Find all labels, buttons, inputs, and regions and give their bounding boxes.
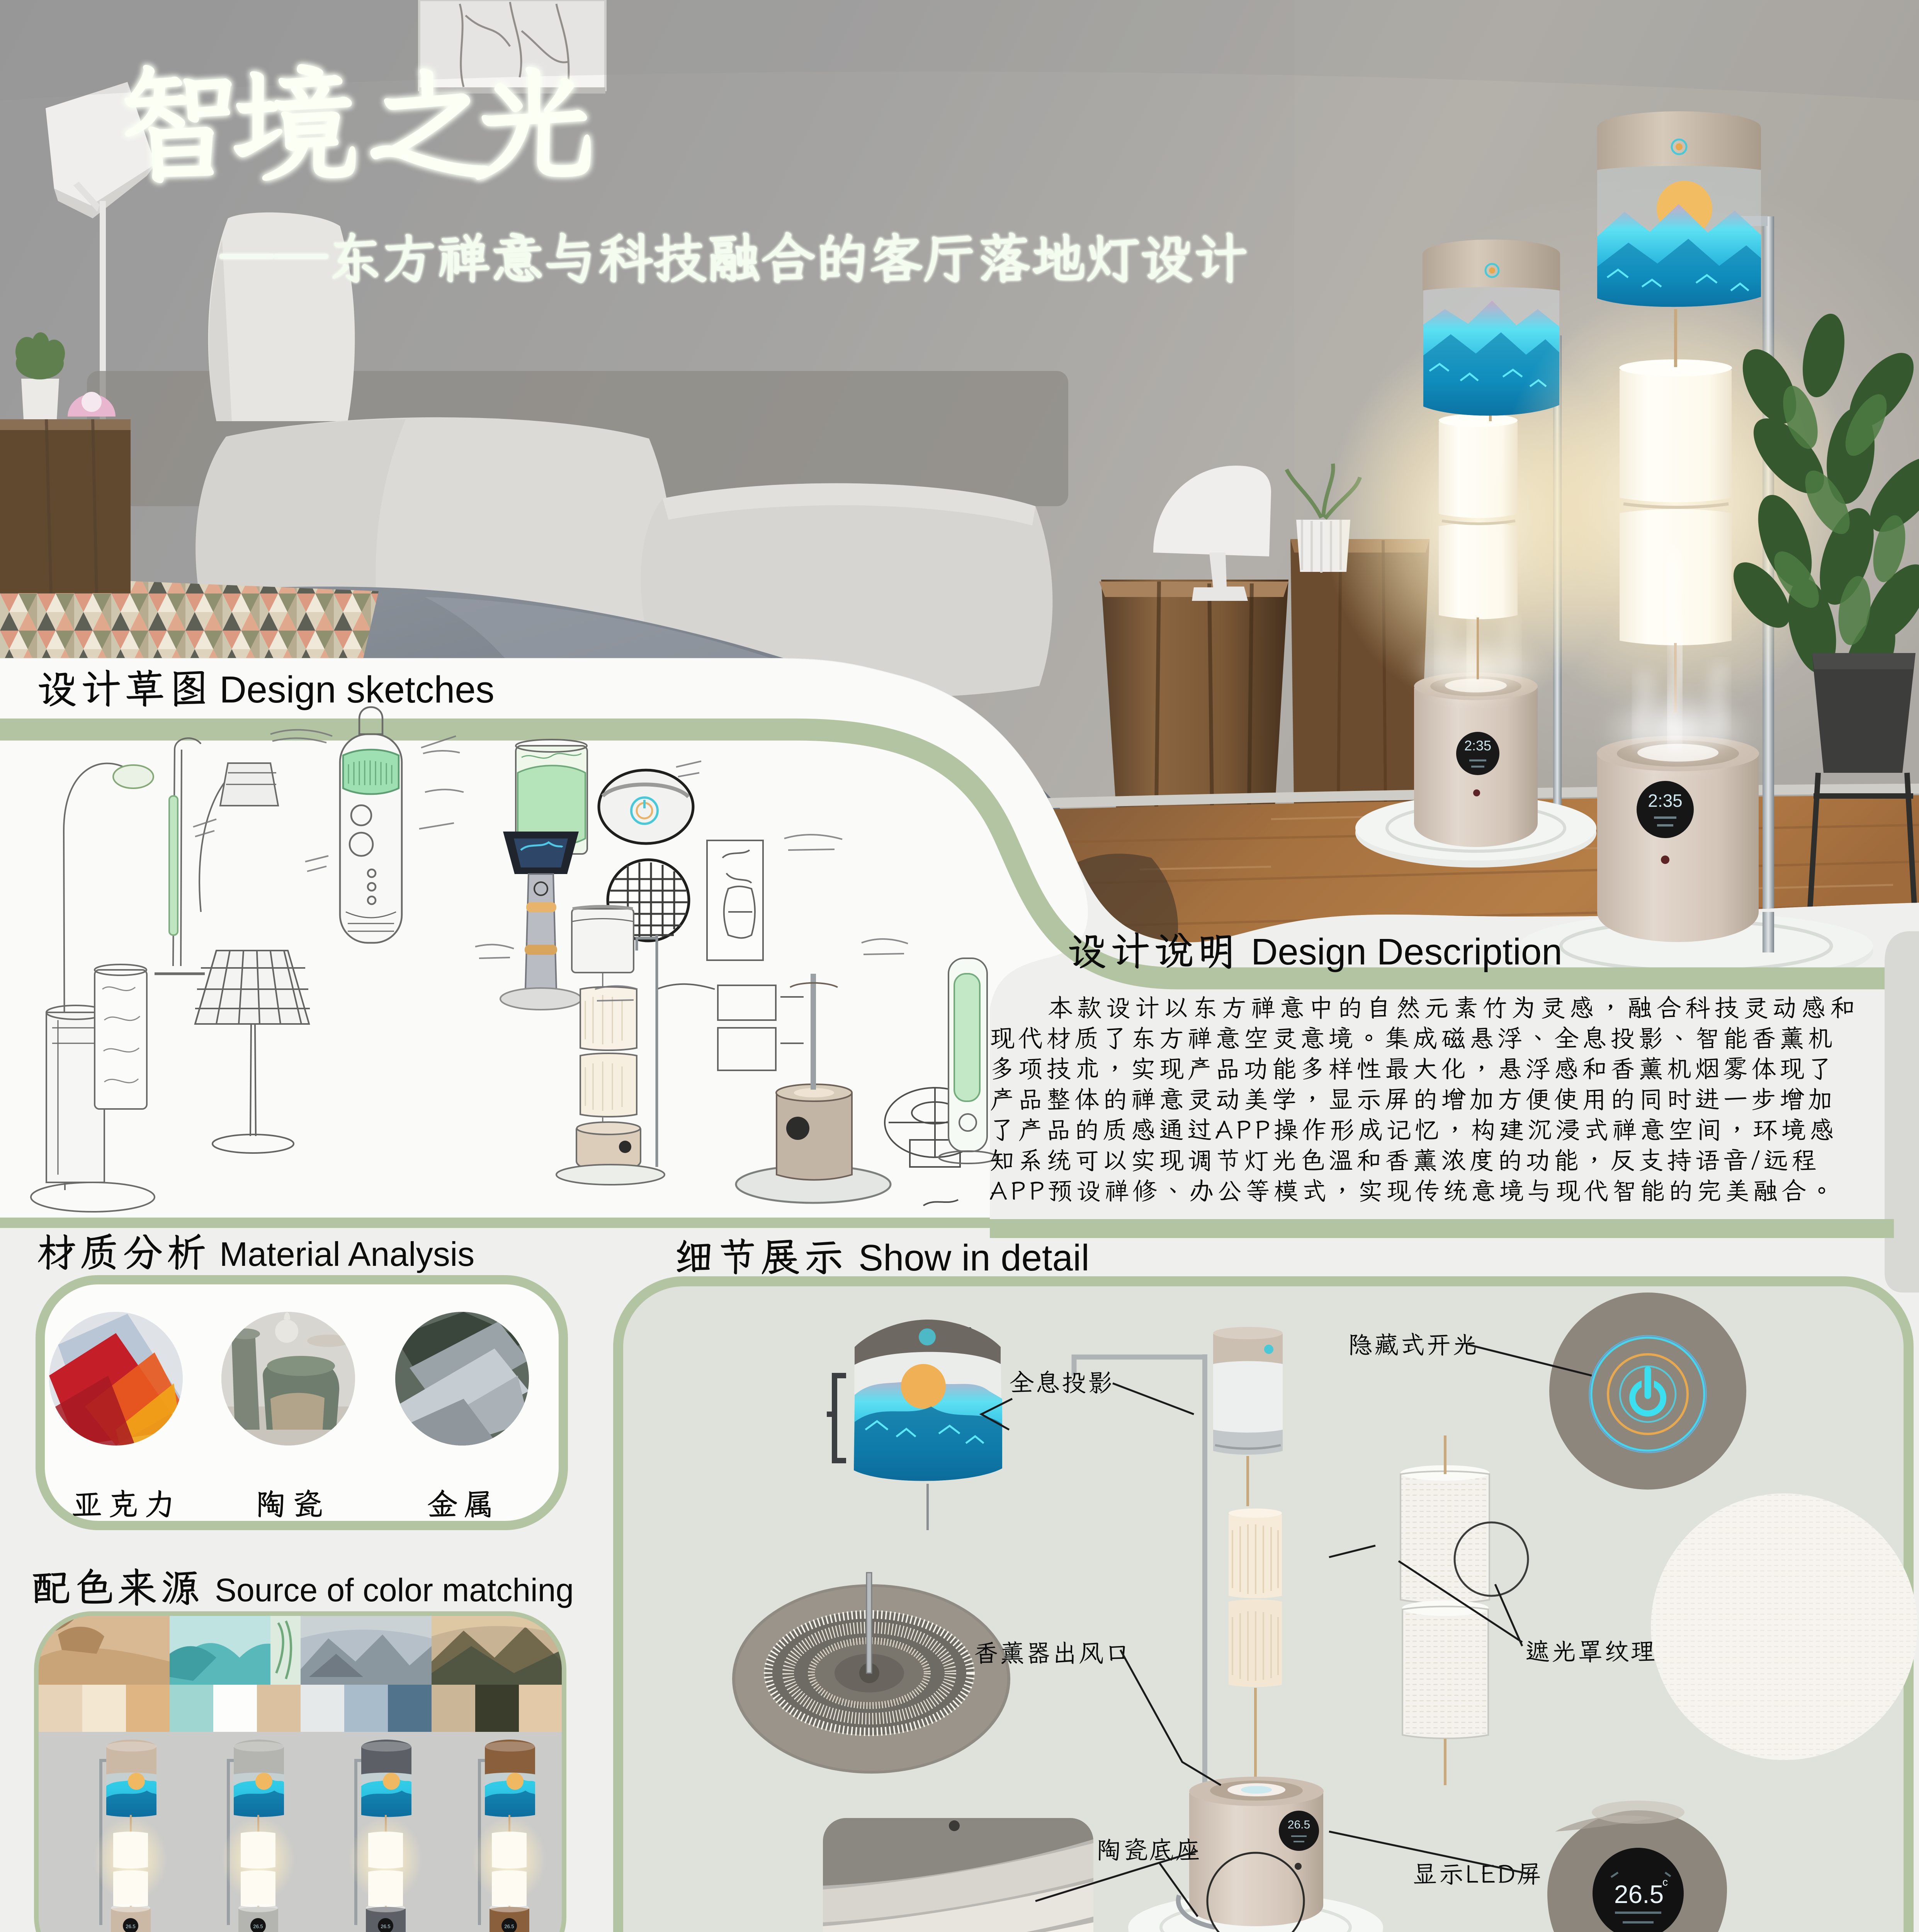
svg-text:Source of color matching: Source of color matching	[215, 1572, 574, 1608]
svg-text:26.5: 26.5	[1614, 1880, 1664, 1908]
svg-text:c: c	[1662, 1876, 1668, 1888]
svg-text:2:35: 2:35	[1648, 791, 1683, 811]
svg-text:Show in detail: Show in detail	[858, 1237, 1090, 1279]
svg-text:26.5: 26.5	[1288, 1818, 1310, 1831]
svg-text:Material Analysis: Material Analysis	[219, 1235, 474, 1273]
svg-text:Design sketches: Design sketches	[219, 668, 495, 711]
svg-text:2:35: 2:35	[1464, 738, 1491, 753]
svg-text:Design Description: Design Description	[1251, 931, 1562, 973]
